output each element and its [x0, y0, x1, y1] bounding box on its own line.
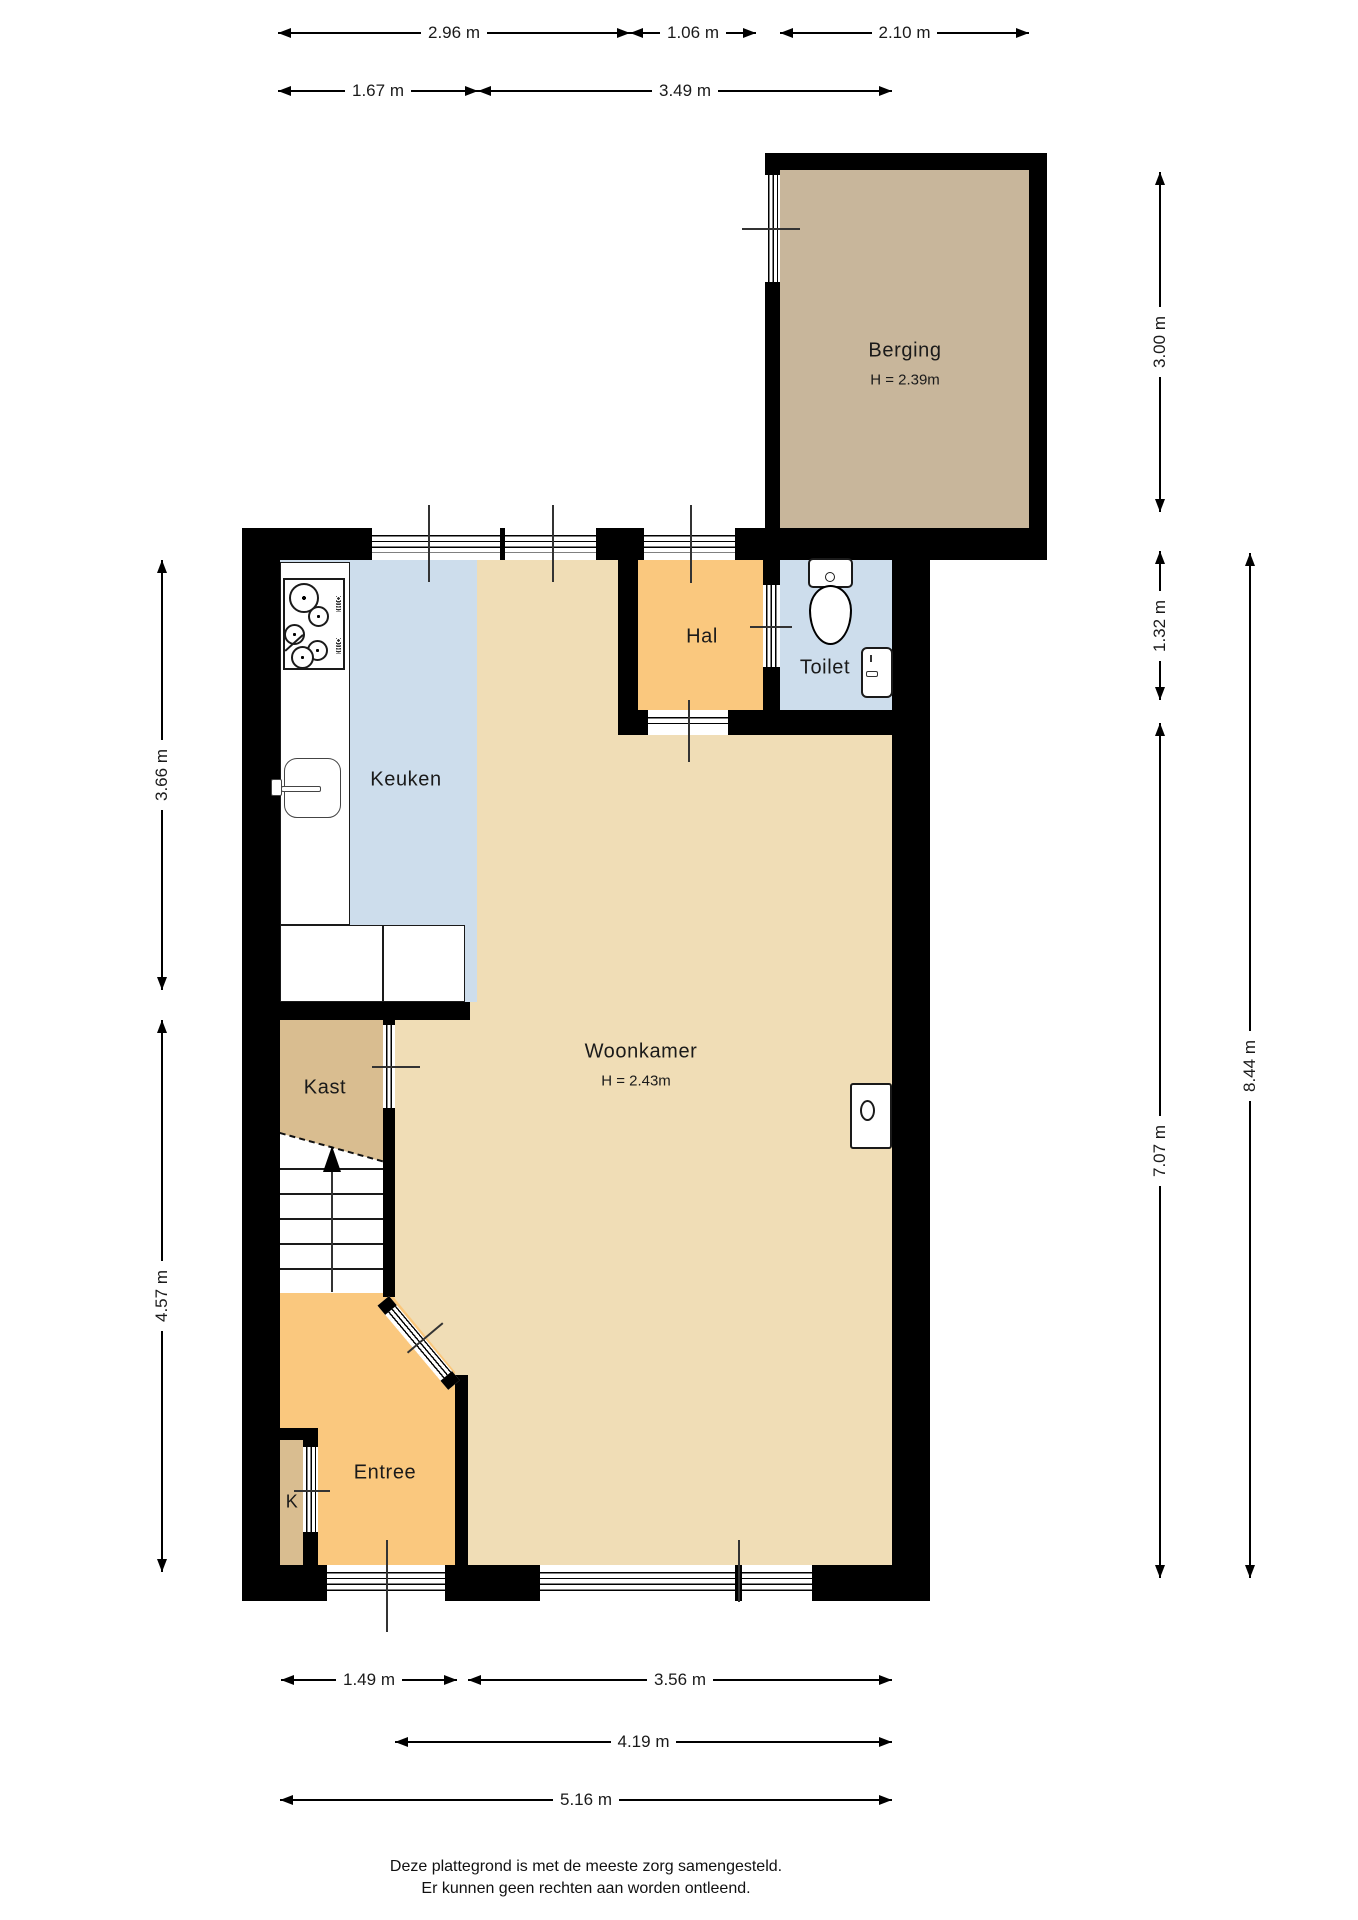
dimension-label: 1.67 m	[345, 81, 411, 101]
dimension-1-06: 1.06 m	[630, 23, 756, 43]
woonkamer-height-note: H = 2.43m	[601, 1073, 671, 1090]
kitchen-counter-box-2	[383, 925, 465, 1002]
hal-label: Hal	[686, 626, 718, 649]
disclaimer-line-2: Er kunnen geen rechten aan worden ontlee…	[390, 1878, 782, 1900]
stairs-arrow-shaft	[331, 1164, 333, 1292]
tick-window-top-1b	[552, 505, 554, 582]
sink-tap-spout	[281, 786, 321, 792]
disclaimer-line-1: Deze plattegrond is met de meeste zorg s…	[390, 1856, 782, 1878]
dimension-4-57: 4.57 m	[152, 1020, 172, 1572]
tick-window-top-1a	[428, 505, 430, 582]
dimension-1-67: 1.67 m	[278, 81, 478, 101]
tick-window-top-2	[690, 505, 692, 583]
basin-drain	[866, 671, 878, 677]
disclaimer: Deze plattegrond is met de meeste zorg s…	[390, 1856, 782, 1900]
dimension-3-49: 3.49 m	[478, 81, 892, 101]
wall-right	[892, 528, 930, 1601]
window-top-1	[372, 528, 596, 560]
dimension-3-66: 3.66 m	[152, 560, 172, 990]
dimension-label: 2.96 m	[421, 23, 487, 43]
dimension-label: 3.49 m	[652, 81, 718, 101]
floorplan-canvas: Berging H = 2.39m Hal Toilet Keuken Woon…	[0, 0, 1358, 1920]
toilet-flush-button	[825, 572, 835, 582]
dimension-label: 3.00 m	[1150, 307, 1170, 377]
entree-wall-right	[455, 1375, 468, 1565]
berging-wall-bottom	[930, 528, 1047, 560]
k-closet-wall-top	[277, 1428, 318, 1440]
berging-wall-right	[1029, 153, 1047, 560]
stove-burner	[291, 646, 314, 669]
tick-berging-window	[742, 228, 800, 230]
dimension-label: 3.66 m	[152, 740, 172, 810]
dimension-1-49: 1.49 m	[281, 1670, 457, 1690]
dimension-8-44: 8.44 m	[1240, 553, 1260, 1578]
dimension-5-16: 5.16 m	[280, 1790, 892, 1810]
tick-toilet-door	[750, 626, 792, 628]
kitchen-counter-box-1	[280, 925, 383, 1002]
k-closet-label: K	[286, 1492, 299, 1513]
dimension-label: 1.06 m	[660, 23, 726, 43]
dimension-3-00: 3.00 m	[1150, 172, 1170, 512]
keuken-kast-wall	[242, 1002, 470, 1020]
stove-knobs	[336, 596, 341, 612]
dimension-label: 4.19 m	[611, 1732, 677, 1752]
dimension-label: 1.32 m	[1150, 591, 1170, 661]
tick-hal-opening	[688, 700, 690, 762]
dimension-label: 7.07 m	[1150, 1116, 1170, 1186]
window-bottom-2	[540, 1565, 812, 1601]
stove-burner	[308, 606, 329, 627]
dimension-label: 8.44 m	[1240, 1031, 1260, 1101]
dimension-label: 3.56 m	[647, 1670, 713, 1690]
basin-tap	[870, 655, 872, 662]
wall-left	[242, 528, 280, 1601]
woonkamer-label: Woonkamer	[585, 1041, 698, 1064]
dimension-2-96: 2.96 m	[278, 23, 630, 43]
dimension-3-56: 3.56 m	[468, 1670, 892, 1690]
hal-wall-left	[618, 560, 638, 735]
berging-label: Berging	[868, 340, 941, 363]
dimension-label: 1.49 m	[336, 1670, 402, 1690]
kast-label: Kast	[304, 1077, 346, 1100]
dimension-label: 2.10 m	[872, 23, 938, 43]
stairs-arrow-head	[323, 1146, 341, 1172]
berging-wall-top	[765, 153, 1047, 170]
heater-fixture-knob	[860, 1100, 875, 1121]
tick-k-door	[294, 1490, 330, 1492]
dimension-4-19: 4.19 m	[395, 1732, 892, 1752]
dimension-1-32: 1.32 m	[1150, 551, 1170, 700]
tick-kast-door	[372, 1066, 420, 1068]
dimension-2-10: 2.10 m	[780, 23, 1029, 43]
dimension-7-07: 7.07 m	[1150, 723, 1170, 1578]
tick-window-bottom-1	[386, 1540, 388, 1632]
window-top-1-mullion	[500, 528, 505, 560]
stove-knobs	[336, 638, 341, 654]
keuken-label: Keuken	[370, 769, 441, 792]
dimension-label: 4.57 m	[152, 1261, 172, 1331]
toilet-label: Toilet	[800, 657, 850, 680]
tick-window-bottom-2	[738, 1540, 740, 1602]
berging-height-note: H = 2.39m	[870, 372, 940, 389]
entree-label: Entree	[354, 1462, 417, 1485]
dimension-label: 5.16 m	[553, 1790, 619, 1810]
